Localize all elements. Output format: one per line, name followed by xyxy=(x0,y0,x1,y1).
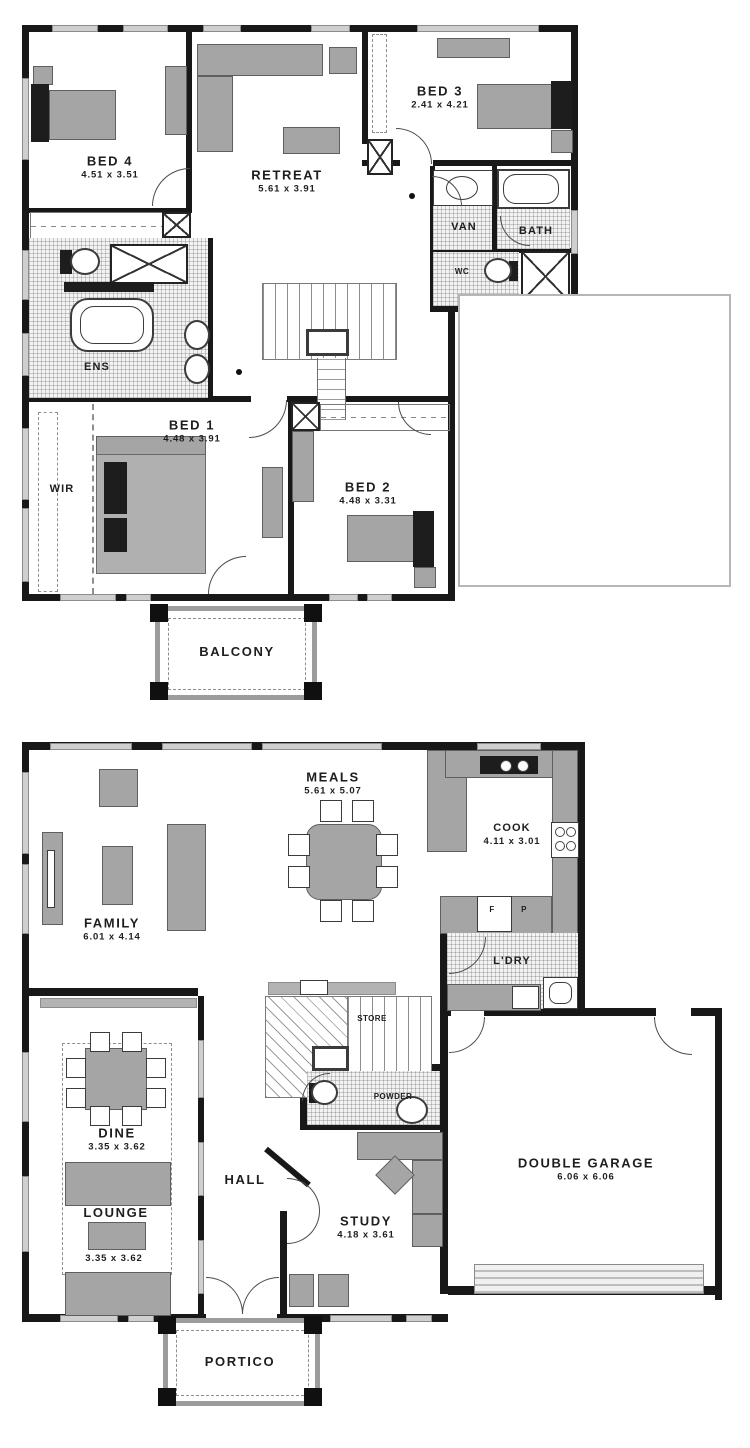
room-name: HALL xyxy=(224,1172,265,1188)
wall xyxy=(433,160,578,166)
garage-label: DOUBLE GARAGE 6.06 x 6.06 xyxy=(518,1156,654,1185)
bathtub-inner xyxy=(503,174,559,204)
chair xyxy=(352,900,374,922)
chair xyxy=(66,1088,86,1108)
room-name: ENS xyxy=(84,361,110,375)
window xyxy=(203,25,241,32)
chair xyxy=(90,1032,110,1052)
chair xyxy=(288,866,310,888)
chair xyxy=(90,1106,110,1126)
pantry-label: P xyxy=(521,905,527,915)
window xyxy=(198,1142,204,1196)
door-arc xyxy=(396,128,432,164)
floorplan-canvas: BED 4 4.51 x 3.51 RETREAT 5.61 x 3.91 BE… xyxy=(0,0,750,1448)
window xyxy=(198,1240,204,1294)
bedside-table xyxy=(551,130,573,153)
wall xyxy=(715,1008,722,1300)
entry-door-arc xyxy=(206,1277,243,1314)
wc-label: WC xyxy=(455,267,469,277)
wir-label: WIR xyxy=(50,483,75,497)
room-name: L'DRY xyxy=(493,955,531,969)
office-chair xyxy=(375,1155,415,1195)
door-arc xyxy=(449,1017,485,1053)
burner xyxy=(555,827,565,837)
sofa xyxy=(65,1272,171,1316)
portico-label: PORTICO xyxy=(205,1354,275,1370)
pillar xyxy=(304,1316,322,1334)
window xyxy=(123,25,168,32)
room-name: WC xyxy=(455,267,469,277)
window xyxy=(22,333,29,376)
shower xyxy=(110,244,188,284)
coffee-table xyxy=(88,1222,146,1250)
pillar xyxy=(158,1316,176,1334)
dresser xyxy=(292,431,314,502)
bath-alcove-wall xyxy=(64,282,154,292)
window xyxy=(571,210,578,254)
pillar xyxy=(150,604,168,622)
door-arc xyxy=(208,556,246,594)
window xyxy=(128,1315,154,1322)
basin xyxy=(184,354,210,384)
room-dims: 4.18 x 3.61 xyxy=(337,1230,394,1242)
robe xyxy=(30,212,164,240)
fridge-label: F xyxy=(489,905,494,915)
room-dims: 5.61 x 3.91 xyxy=(251,184,323,196)
wall xyxy=(578,742,585,1016)
wardrobe-rail xyxy=(38,412,58,592)
wall xyxy=(198,1098,204,1142)
room-name: DINE xyxy=(88,1126,145,1142)
van-label: VAN xyxy=(451,221,477,235)
burner xyxy=(566,827,576,837)
powder-label: POWDER xyxy=(374,1092,412,1102)
bed-headboard xyxy=(31,84,49,142)
chair xyxy=(288,834,310,856)
bed xyxy=(347,515,414,562)
room-name: BED 1 xyxy=(163,418,220,434)
meals-label: MEALS 5.61 x 5.07 xyxy=(304,770,361,799)
wall xyxy=(198,996,204,1040)
chair xyxy=(66,1058,86,1078)
room-name: VAN xyxy=(451,221,477,235)
lounge-label: LOUNGE xyxy=(83,1205,148,1221)
room-dims: 4.48 x 3.91 xyxy=(163,434,220,446)
room-name: WIR xyxy=(50,483,75,497)
window xyxy=(60,594,116,601)
tv-screen xyxy=(47,850,55,908)
burner xyxy=(555,841,565,851)
hall-label: HALL xyxy=(224,1172,265,1188)
fixture-name: F xyxy=(489,905,494,915)
bedside-table xyxy=(414,567,436,588)
overhead-beam xyxy=(268,982,396,995)
bed-headboard xyxy=(551,81,572,129)
chair xyxy=(320,900,342,922)
door-arc xyxy=(287,1178,320,1211)
roof-outline xyxy=(458,294,731,587)
window xyxy=(22,250,29,300)
toilet xyxy=(484,258,512,283)
sofa-corner xyxy=(197,76,233,152)
wall xyxy=(198,1196,204,1240)
detector-dot xyxy=(236,369,242,375)
robe-closet xyxy=(162,212,191,238)
cooktop-knob xyxy=(500,760,512,772)
side-table xyxy=(329,47,357,74)
bed2-label: BED 2 4.48 x 3.31 xyxy=(339,480,396,509)
dine-label: DINE 3.35 x 3.62 xyxy=(88,1126,145,1155)
bed3-label: BED 3 2.41 x 4.21 xyxy=(411,84,468,113)
room-name: LOUNGE xyxy=(83,1205,148,1221)
room-dims: 4.11 x 3.01 xyxy=(484,836,541,848)
entry-door-arc xyxy=(242,1277,279,1314)
dining-table xyxy=(85,1048,147,1110)
room-name: DOUBLE GARAGE xyxy=(518,1156,654,1172)
bed1-label: BED 1 4.48 x 3.91 xyxy=(163,418,220,447)
stove xyxy=(551,822,579,858)
window xyxy=(329,594,358,601)
room-dims: 5.61 x 5.07 xyxy=(304,786,361,798)
room-dims: 3.35 x 3.62 xyxy=(88,1142,145,1154)
stair-handrail xyxy=(306,329,349,356)
window xyxy=(162,743,252,750)
door-opening xyxy=(656,1008,691,1016)
lounge-dims-label: 3.35 x 3.62 xyxy=(85,1253,142,1265)
balcony-label: BALCONY xyxy=(199,644,274,660)
room-name: PORTICO xyxy=(205,1354,275,1370)
dresser xyxy=(437,38,510,58)
bathtub-inner xyxy=(80,306,144,344)
bookcase xyxy=(289,1274,314,1307)
room-name: FAMILY xyxy=(83,916,140,932)
room-dims: 4.51 x 3.51 xyxy=(81,170,138,182)
dresser xyxy=(165,66,187,135)
pillar xyxy=(304,604,322,622)
room-name: STORE xyxy=(357,1014,386,1024)
desk xyxy=(357,1132,443,1160)
room-dims: 3.35 x 3.62 xyxy=(85,1253,142,1265)
chair xyxy=(376,866,398,888)
chair xyxy=(376,834,398,856)
overhead-beam xyxy=(40,998,197,1008)
dining-table xyxy=(306,824,382,900)
ens-label: ENS xyxy=(84,361,110,375)
chair xyxy=(122,1032,142,1052)
cooktop-knob xyxy=(517,760,529,772)
pillar xyxy=(158,1388,176,1406)
pillar xyxy=(304,682,322,700)
wir-divider xyxy=(92,404,95,594)
bed-headboard xyxy=(413,511,434,567)
bedside-table xyxy=(33,66,53,85)
wall xyxy=(448,305,455,601)
chair xyxy=(352,800,374,822)
room-name: STUDY xyxy=(337,1214,394,1230)
room-dims: 4.48 x 3.31 xyxy=(339,496,396,508)
room-name: BATH xyxy=(519,225,553,239)
door-arc xyxy=(654,1017,692,1055)
window xyxy=(22,78,29,160)
chair xyxy=(320,800,342,822)
garage-roller-door xyxy=(474,1264,704,1294)
room-name: BALCONY xyxy=(199,644,274,660)
bed-pillow xyxy=(104,462,127,514)
room-name: RETREAT xyxy=(251,168,323,184)
window xyxy=(22,1052,29,1122)
bed-pillow xyxy=(104,518,127,552)
chair xyxy=(146,1088,166,1108)
window xyxy=(477,743,541,750)
burner xyxy=(566,841,576,851)
sofa xyxy=(65,1162,171,1206)
wall xyxy=(29,988,198,996)
window xyxy=(22,1176,29,1252)
window xyxy=(52,25,98,32)
window xyxy=(198,1040,204,1098)
bed4-label: BED 4 4.51 x 3.51 xyxy=(81,154,138,183)
window xyxy=(367,594,392,601)
stairs xyxy=(347,996,432,1072)
room-name: BED 4 xyxy=(81,154,138,170)
laundry-tub-inner xyxy=(549,982,572,1004)
pillar xyxy=(304,1388,322,1406)
stair-niche xyxy=(300,980,328,995)
cook-label: COOK 4.11 x 3.01 xyxy=(484,822,541,848)
fixture-name: P xyxy=(521,905,527,915)
wall xyxy=(440,926,447,1016)
window xyxy=(50,743,132,750)
study-label: STUDY 4.18 x 3.61 xyxy=(337,1214,394,1243)
family-label: FAMILY 6.01 x 4.14 xyxy=(83,916,140,945)
sofa xyxy=(197,44,323,76)
room-name: BED 3 xyxy=(411,84,468,100)
room-dims: 6.01 x 4.14 xyxy=(83,932,140,944)
file-cabinet xyxy=(412,1214,443,1247)
window xyxy=(311,25,350,32)
robe xyxy=(372,34,387,133)
bath-label: BATH xyxy=(519,225,553,239)
window xyxy=(22,428,29,500)
bookcase xyxy=(318,1274,349,1307)
window xyxy=(22,772,29,854)
door-arc xyxy=(287,1211,320,1244)
store-label: STORE xyxy=(357,1014,386,1024)
window xyxy=(126,594,151,601)
window xyxy=(22,864,29,934)
wall xyxy=(362,32,368,144)
chair xyxy=(146,1058,166,1078)
window xyxy=(406,1315,432,1322)
armchair xyxy=(99,769,138,807)
room-dims: 2.41 x 4.21 xyxy=(411,100,468,112)
window xyxy=(60,1315,118,1322)
window xyxy=(22,508,29,582)
detector-dot xyxy=(409,193,415,199)
linen-closet xyxy=(367,139,393,175)
bed xyxy=(49,90,116,140)
desk-return xyxy=(412,1160,443,1214)
wall xyxy=(280,1211,287,1314)
toilet xyxy=(70,248,100,275)
wall xyxy=(571,25,578,312)
stair-handrail xyxy=(312,1046,349,1071)
retreat-label: RETREAT 5.61 x 3.91 xyxy=(251,168,323,197)
washer xyxy=(512,986,539,1009)
room-dims: 6.06 x 6.06 xyxy=(518,1172,654,1184)
laundry-label: L'DRY xyxy=(493,955,531,969)
bed xyxy=(477,84,553,129)
basin xyxy=(184,320,210,350)
window xyxy=(417,25,539,32)
room-name: POWDER xyxy=(374,1092,412,1102)
chair xyxy=(122,1106,142,1126)
window xyxy=(262,743,382,750)
coffee-table xyxy=(283,127,340,154)
room-name: COOK xyxy=(484,822,541,836)
pillar xyxy=(150,682,168,700)
door-arc xyxy=(249,400,287,438)
robe-closet xyxy=(291,402,320,431)
sofa xyxy=(167,824,206,931)
ottoman xyxy=(102,846,133,905)
window xyxy=(330,1315,392,1322)
room-name: MEALS xyxy=(304,770,361,786)
door-arc xyxy=(152,168,190,206)
dresser xyxy=(262,467,283,538)
room-name: BED 2 xyxy=(339,480,396,496)
